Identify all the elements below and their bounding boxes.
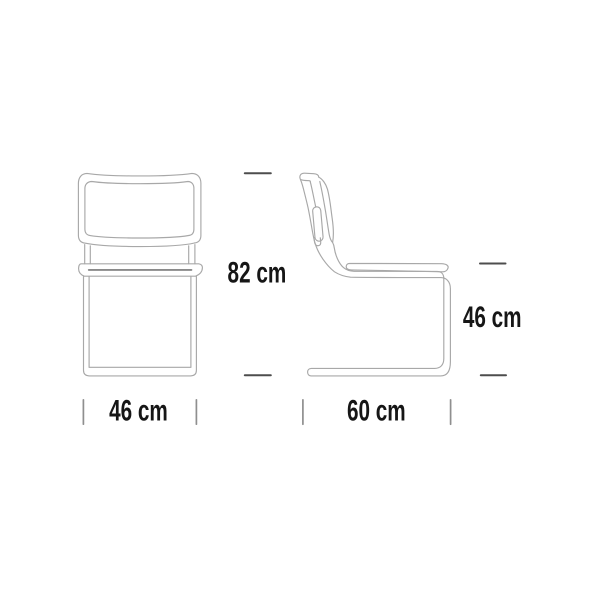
svg-text:60 cm: 60 cm (347, 395, 406, 428)
svg-text:46 cm: 46 cm (463, 301, 522, 334)
svg-text:82 cm: 82 cm (228, 257, 287, 290)
svg-text:46 cm: 46 cm (109, 395, 168, 428)
